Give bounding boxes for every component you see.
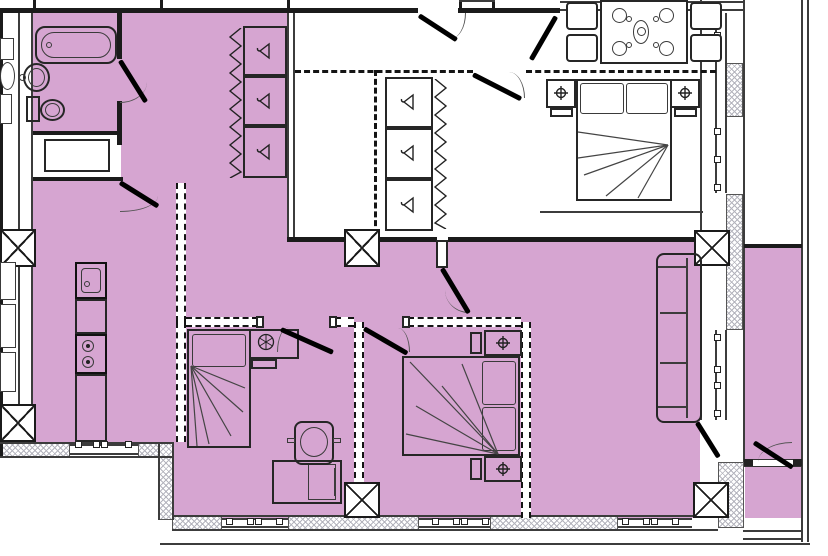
dashed-partition — [295, 70, 473, 73]
burner-center — [86, 360, 90, 364]
ventilation-shaft — [344, 482, 380, 518]
hanger-icon — [255, 142, 275, 167]
wall-pier-hatch — [726, 63, 743, 117]
window-mark — [651, 518, 658, 525]
wall-living-top — [448, 237, 695, 242]
wall-entry — [293, 13, 295, 237]
kitchen-tap — [84, 281, 90, 287]
window-mark — [461, 518, 468, 525]
exterior-wall-hatch — [172, 516, 222, 530]
window-mark — [714, 128, 721, 135]
door-post — [436, 240, 448, 268]
neighbor-basin — [0, 62, 15, 90]
office-chair-seat — [300, 427, 328, 457]
window-mark — [125, 441, 132, 448]
window-mark — [622, 518, 629, 525]
wall-stub — [160, 0, 163, 8]
kitchen-counter — [75, 299, 107, 334]
exterior-wall-hatch — [288, 516, 419, 530]
wall-bathroom — [117, 13, 122, 59]
plate-setting — [659, 41, 674, 56]
window-frame — [715, 330, 717, 420]
wall-stub — [33, 0, 36, 8]
balcony-rail — [743, 538, 803, 540]
wall-bathroom — [117, 101, 122, 135]
window-frame — [725, 330, 727, 420]
wall-wc — [33, 177, 123, 181]
window-mark — [672, 518, 679, 525]
shower-tray — [44, 139, 110, 172]
plate-setting — [659, 8, 674, 23]
neighbor-counter — [0, 352, 16, 392]
window-mark — [714, 382, 721, 389]
kitchen-counter — [75, 374, 107, 442]
kitchen-sink-bowl — [81, 268, 101, 293]
window-mark — [101, 441, 108, 448]
window-mark — [482, 518, 489, 525]
sofa — [656, 253, 702, 423]
window-mark — [714, 334, 721, 341]
window-sill — [70, 453, 138, 455]
balcony-rail — [743, 530, 803, 532]
blanket-fold-lines — [402, 356, 520, 461]
wall-edge — [172, 529, 718, 531]
neighbor-toilet — [0, 94, 12, 124]
dashed-partition-band — [408, 317, 521, 327]
dining-chair — [690, 2, 722, 30]
neighbor-fixture — [0, 38, 14, 60]
burner-center — [86, 344, 90, 348]
door-post — [329, 316, 337, 328]
wall-bathroom — [33, 131, 122, 135]
window-mark — [643, 518, 650, 525]
wall-stub — [287, 0, 290, 8]
window-mark — [432, 518, 439, 525]
dashed-partition-band — [186, 317, 258, 327]
table-lamp-icon — [677, 85, 693, 106]
floor-area-balcony — [745, 248, 802, 518]
wash-basin-inner — [28, 68, 45, 87]
window-mark — [714, 366, 721, 373]
cup — [653, 42, 659, 48]
wall-wc — [117, 133, 122, 145]
dashed-partition-band — [176, 183, 186, 322]
cup — [626, 16, 632, 22]
neighbor-counter — [0, 304, 16, 348]
dining-chair — [566, 2, 598, 30]
window-sill — [222, 526, 288, 528]
wall-top — [0, 8, 418, 13]
wall-edge — [158, 442, 160, 520]
hanger-icon — [399, 92, 419, 117]
cup — [626, 42, 632, 48]
threshold-mark — [744, 459, 753, 466]
window-mark — [714, 410, 721, 417]
floor-area-hall-extension — [174, 443, 287, 519]
ventilation-shaft — [344, 229, 380, 267]
nightstand-side — [470, 458, 482, 480]
dining-chair — [566, 34, 598, 62]
window-mark — [75, 441, 82, 448]
clothes-rail-icon — [433, 79, 449, 234]
wall-entry — [287, 13, 289, 237]
hanger-icon — [255, 41, 275, 66]
window-mark — [276, 518, 283, 525]
sofa-cushion-line — [660, 362, 687, 364]
window-sill — [618, 526, 692, 528]
hanger-icon — [399, 143, 419, 168]
plant-icon — [257, 333, 275, 356]
wall-top — [458, 8, 560, 13]
balcony-rail — [807, 0, 809, 542]
plate-setting — [612, 8, 627, 23]
dashed-partition-band — [335, 317, 354, 327]
nightstand-shelf — [251, 359, 277, 369]
wall-window-outer — [743, 0, 745, 462]
sofa-armrest-line — [658, 406, 688, 408]
serving-dish-inner — [637, 27, 646, 36]
window-sill — [419, 526, 490, 528]
sofa-cushion-line — [660, 312, 687, 314]
wall-edge — [0, 456, 172, 458]
desk-drawer — [308, 464, 336, 500]
nightstand-side — [470, 332, 482, 354]
window-mark — [255, 518, 262, 525]
basin-tap — [19, 74, 26, 81]
plate-setting — [612, 41, 627, 56]
table-lamp-icon — [495, 461, 511, 482]
dining-chair — [690, 34, 722, 62]
window-mark — [93, 441, 100, 448]
hanger-icon — [255, 91, 275, 116]
wall-edge — [172, 515, 718, 517]
office-chair-armrest — [333, 438, 341, 443]
window-frame — [725, 13, 727, 193]
exterior-wall-hatch — [490, 516, 618, 530]
toilet-bowl-inner — [45, 103, 60, 117]
dashed-partition-band — [521, 322, 531, 518]
window-mark — [247, 518, 254, 525]
table-lamp-icon — [495, 335, 511, 356]
site-boundary — [160, 543, 810, 545]
window-mark — [453, 518, 460, 525]
neighbor-sink-unit — [0, 262, 16, 300]
wall-edge — [172, 442, 174, 520]
window-mark — [714, 184, 721, 191]
window-mark — [226, 518, 233, 525]
floor-plan-canvas — [0, 0, 828, 556]
clothes-rail-icon — [227, 28, 243, 183]
blanket-fold-lines — [576, 100, 672, 205]
wall-master-bottom — [540, 211, 703, 213]
door-leaf-entry-inner — [529, 15, 558, 61]
nightstand-shelf — [550, 108, 573, 117]
dashed-partition — [526, 70, 716, 73]
toilet-tank — [26, 96, 40, 122]
door-post — [402, 316, 410, 328]
sofa-armrest-line — [658, 266, 688, 268]
hanger-icon — [399, 195, 419, 220]
ventilation-shaft — [693, 482, 729, 518]
desk-handle — [334, 468, 336, 496]
dashed-partition — [374, 70, 377, 235]
door-post — [256, 316, 264, 328]
nightstand-shelf — [674, 108, 697, 117]
sofa-back-line — [686, 258, 688, 418]
balcony-partition — [744, 244, 802, 248]
bathtub-drain — [46, 42, 52, 48]
ventilation-shaft — [0, 404, 36, 442]
office-chair-armrest — [287, 438, 295, 443]
wall-niche — [459, 0, 495, 2]
window-mark — [714, 156, 721, 163]
threshold-mark — [793, 459, 802, 466]
blanket-fold-lines — [187, 360, 251, 453]
dashed-partition-band — [176, 322, 186, 442]
cup — [653, 16, 659, 22]
table-lamp-icon — [553, 85, 569, 106]
